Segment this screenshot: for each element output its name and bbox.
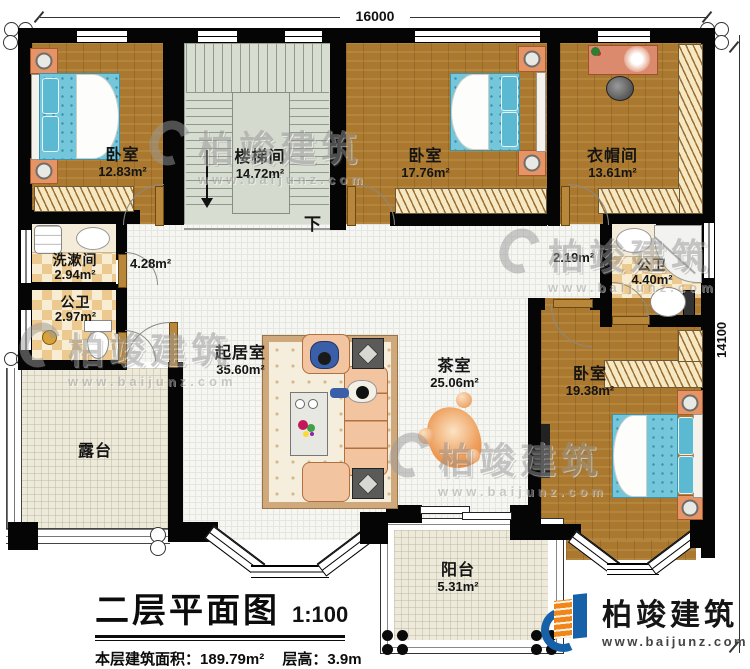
bay-window	[251, 565, 329, 578]
bay-wall	[360, 512, 388, 544]
wardrobe-icon	[678, 44, 703, 214]
wall-int	[510, 505, 541, 540]
wall-int	[18, 360, 127, 370]
terrace-railing-left	[6, 368, 22, 542]
nightstand-icon	[677, 390, 703, 415]
floor-plan-canvas: 16000 14100	[0, 0, 750, 669]
washing-machine-icon	[34, 225, 62, 254]
balcony-column-dot	[397, 644, 408, 655]
hall-right-area-label: 2.19m²	[553, 250, 594, 265]
corner-ornament	[714, 35, 729, 50]
wall-int	[330, 43, 346, 230]
stair-arrow-head	[201, 198, 213, 208]
room-label-tea-room: 茶室 25.06m²	[412, 358, 497, 391]
wall-right	[701, 28, 715, 558]
balcony-column-dot	[382, 644, 393, 655]
dimension-tick	[729, 41, 740, 53]
pillow-icon	[501, 76, 518, 111]
stair-arrow-line	[206, 150, 208, 200]
room-label-washroom: 洗漱间 2.94m²	[35, 252, 115, 283]
wardrobe-icon	[34, 186, 134, 212]
stair-treads	[186, 43, 328, 92]
toilet-icon	[650, 287, 686, 317]
plan-info: 本层建筑面积：189.79m² 层高：3.9m	[95, 648, 345, 669]
pillow-icon	[678, 417, 694, 455]
plan-title: 二层平面图	[95, 592, 280, 630]
valve-icon	[42, 330, 57, 345]
company-logo-icon	[540, 594, 592, 656]
wardrobe-icon	[598, 188, 680, 214]
hall-corridor-floor	[127, 224, 600, 300]
sink-icon	[616, 228, 652, 253]
wall-int	[18, 210, 140, 224]
pillow-icon	[42, 78, 59, 114]
stair-down-label: 下	[304, 210, 321, 235]
window	[285, 29, 322, 43]
bed-sheet	[451, 74, 489, 150]
door-leaf	[169, 322, 178, 368]
side-table-icon	[352, 338, 384, 369]
room-label-stairwell: 楼梯间 14.72m²	[215, 149, 305, 182]
title-underline	[95, 635, 345, 638]
bed-sheet	[613, 415, 647, 497]
tv-icon	[541, 424, 550, 478]
person-head-icon	[356, 386, 369, 399]
plan-scale: 1:100	[292, 602, 348, 627]
pillow-icon	[501, 112, 518, 147]
wardrobe-icon	[678, 330, 703, 362]
chair-icon	[606, 76, 634, 101]
dimension-line-right	[739, 35, 740, 653]
person-head-icon	[318, 352, 331, 365]
desk-lamp-icon	[624, 46, 650, 72]
bouquet-icon	[298, 420, 308, 430]
terrace-column	[8, 522, 38, 550]
title-block: 二层平面图1:100 本层建筑面积：189.79m² 层高：3.9m	[95, 583, 345, 669]
nightstand-icon	[518, 46, 546, 72]
wall-int	[390, 212, 547, 226]
nightstand-icon	[518, 150, 546, 176]
title-underline	[95, 640, 345, 641]
pillow-icon	[42, 116, 59, 152]
dimension-top-value: 16000	[340, 8, 410, 24]
room-label-bedroom-top-middle: 卧室 17.76m²	[378, 148, 473, 181]
window	[702, 223, 715, 278]
wall-int	[548, 212, 560, 226]
window	[77, 29, 127, 43]
flower-icon	[591, 47, 600, 56]
stone-icon	[466, 449, 480, 463]
window	[198, 29, 237, 43]
wall-int	[547, 43, 560, 225]
wall-int	[163, 43, 184, 225]
stone-icon	[418, 428, 434, 444]
balcony-column-dot	[397, 630, 408, 641]
side-table-icon	[352, 468, 384, 499]
room-label-bathroom-right: 公卫 4.40m²	[612, 257, 692, 288]
wall-int	[32, 282, 116, 290]
cup-icon	[295, 399, 305, 409]
company-logo: 柏竣建筑 www.baijunz.com	[540, 594, 748, 656]
corner-ornament	[3, 35, 18, 50]
hall-left-area-label: 4.28m²	[130, 256, 171, 271]
company-logo-text: 柏竣建筑	[602, 601, 748, 631]
window	[19, 310, 32, 350]
wall-int	[168, 362, 183, 530]
window	[415, 29, 540, 43]
cup-icon	[308, 399, 318, 409]
room-label-bedroom-top-left: 卧室 12.83m²	[75, 147, 170, 180]
balcony-column-dot	[382, 630, 393, 641]
wall-int	[600, 315, 612, 327]
room-label-cloakroom: 衣帽间 13.61m²	[565, 148, 660, 181]
bed-headboard	[693, 414, 703, 498]
nightstand-icon	[30, 48, 58, 74]
wall-int	[648, 315, 701, 327]
wall-int	[528, 298, 541, 538]
bay-wall	[690, 520, 715, 548]
armchair-icon	[302, 462, 350, 502]
room-label-balcony: 阳台 5.31m²	[413, 562, 503, 595]
dimension-right-value: 14100	[714, 300, 736, 380]
stone-icon	[456, 392, 472, 408]
sliding-door	[462, 512, 512, 520]
person-legs-icon	[330, 388, 349, 398]
company-logo-url: www.baijunz.com	[602, 634, 748, 649]
wardrobe-icon	[395, 188, 547, 214]
room-label-living-room: 起居室 35.60m²	[193, 345, 288, 378]
pillow-icon	[678, 456, 694, 494]
wall-int	[116, 284, 127, 334]
nightstand-icon	[30, 158, 58, 184]
nightstand-icon	[677, 495, 703, 520]
room-label-bedroom-bottom-right: 卧室 19.38m²	[545, 366, 635, 399]
bed-headboard	[536, 72, 546, 152]
room-label-toilet-left: 公卫 2.97m²	[38, 294, 113, 325]
window	[19, 230, 32, 283]
room-label-terrace: 露台	[50, 443, 140, 461]
sink-icon	[76, 227, 110, 250]
terrace-pillar	[150, 540, 166, 556]
window	[598, 29, 650, 43]
